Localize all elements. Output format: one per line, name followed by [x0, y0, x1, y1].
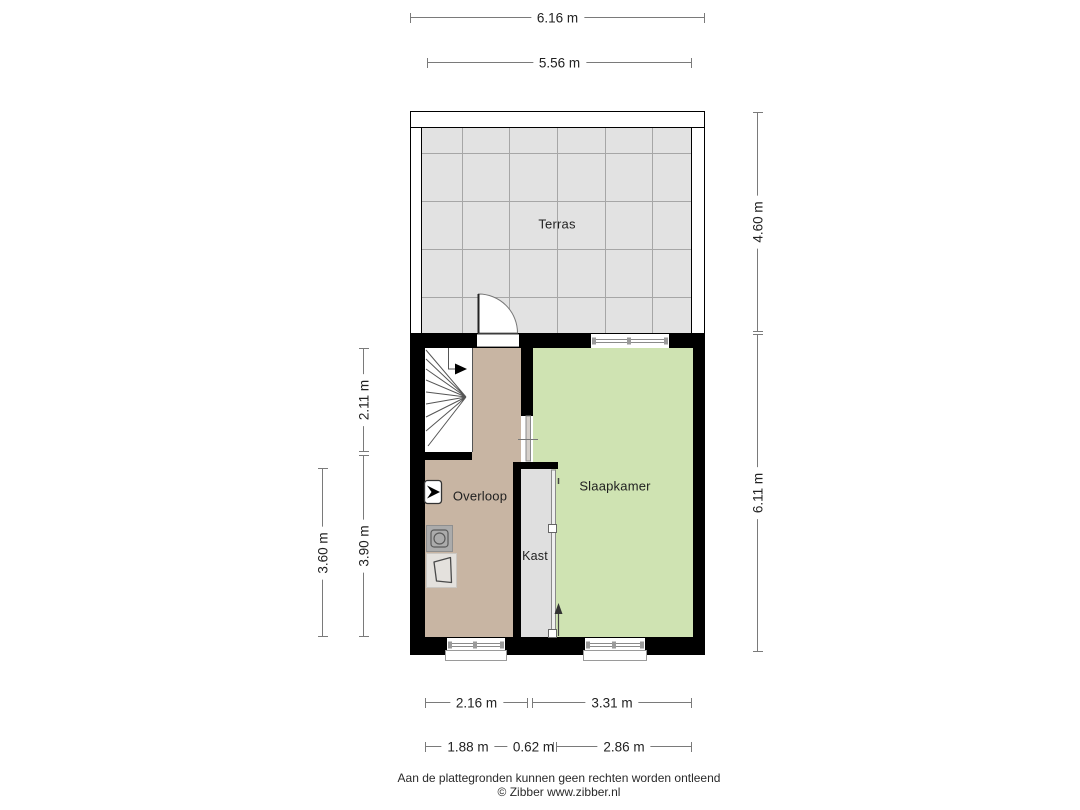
dim-top-inner-label: 5.56 m: [533, 55, 586, 70]
disclaimer: Aan de plattegronden kunnen geen rechten…: [19, 771, 1080, 799]
stairs-area: [425, 348, 472, 452]
dim-top-inner: 5.56 m: [427, 62, 692, 63]
terras-wall-top: [410, 111, 705, 128]
room-label-terras: Terras: [538, 217, 575, 232]
dim-right-lower-label: 6.11 m: [750, 467, 765, 519]
dim-left-stairs-label: 2.11 m: [356, 374, 371, 426]
dim-right-lower: 6.11 m: [757, 334, 758, 652]
dim-bottom-detail-3: 2.86 m: [556, 746, 692, 747]
dim-left-lower-inner-label: 3.90 m: [356, 519, 371, 572]
dim-right-upper: 4.60 m: [757, 112, 758, 332]
dim-bottom-detail-2-label: 0.62 m: [507, 739, 560, 754]
dim-bottom-overloop-label: 2.16 m: [450, 695, 503, 710]
windowsill-bottom-right: [583, 650, 647, 661]
room-label-overloop: Overloop: [453, 489, 507, 504]
floorplan-page: Terras Overloop Slaapkamer Kast 6.16 m 5…: [0, 0, 1080, 810]
dim-left-lower-outer: 3.60 m: [322, 468, 323, 637]
window-top: [591, 334, 669, 348]
dim-right-upper-label: 4.60 m: [750, 195, 765, 248]
wall-left: [410, 333, 425, 655]
disclaimer-line2: © Zibber www.zibber.nl: [19, 785, 1080, 799]
dim-bottom-detail-1-label: 1.88 m: [441, 739, 494, 754]
dim-left-stairs: 2.11 m: [363, 348, 364, 452]
room-label-kast: Kast: [522, 549, 548, 563]
dim-left-lower-inner: 3.90 m: [363, 455, 364, 637]
windowsill-bottom-left: [445, 650, 507, 661]
dim-bottom-detail-2: 0.62 m: [513, 746, 554, 747]
room-label-slaapkamer: Slaapkamer: [579, 479, 650, 494]
wall-divider: [521, 348, 533, 416]
dim-left-lower-outer-label: 3.60 m: [315, 526, 330, 579]
wall-kast-left: [513, 463, 521, 637]
dim-bottom-detail-3-label: 2.86 m: [597, 739, 650, 754]
terras-wall-right: [691, 127, 705, 334]
wall-stairs-stub: [425, 452, 472, 460]
dim-bottom-slaapkamer-label: 3.31 m: [585, 695, 638, 710]
dim-bottom-detail-1: 1.88 m: [425, 746, 511, 747]
disclaimer-line1: Aan de plattegronden kunnen geen rechten…: [19, 771, 1080, 785]
dim-bottom-overloop: 2.16 m: [425, 702, 528, 703]
dim-top-outer-label: 6.16 m: [531, 10, 584, 25]
dim-bottom-slaapkamer: 3.31 m: [532, 702, 692, 703]
terrace-door-opening: [477, 334, 519, 347]
interior-door-gap: [521, 416, 533, 463]
terras-wall-left: [410, 127, 422, 334]
dim-top-outer: 6.16 m: [410, 17, 705, 18]
wall-right: [693, 333, 705, 655]
